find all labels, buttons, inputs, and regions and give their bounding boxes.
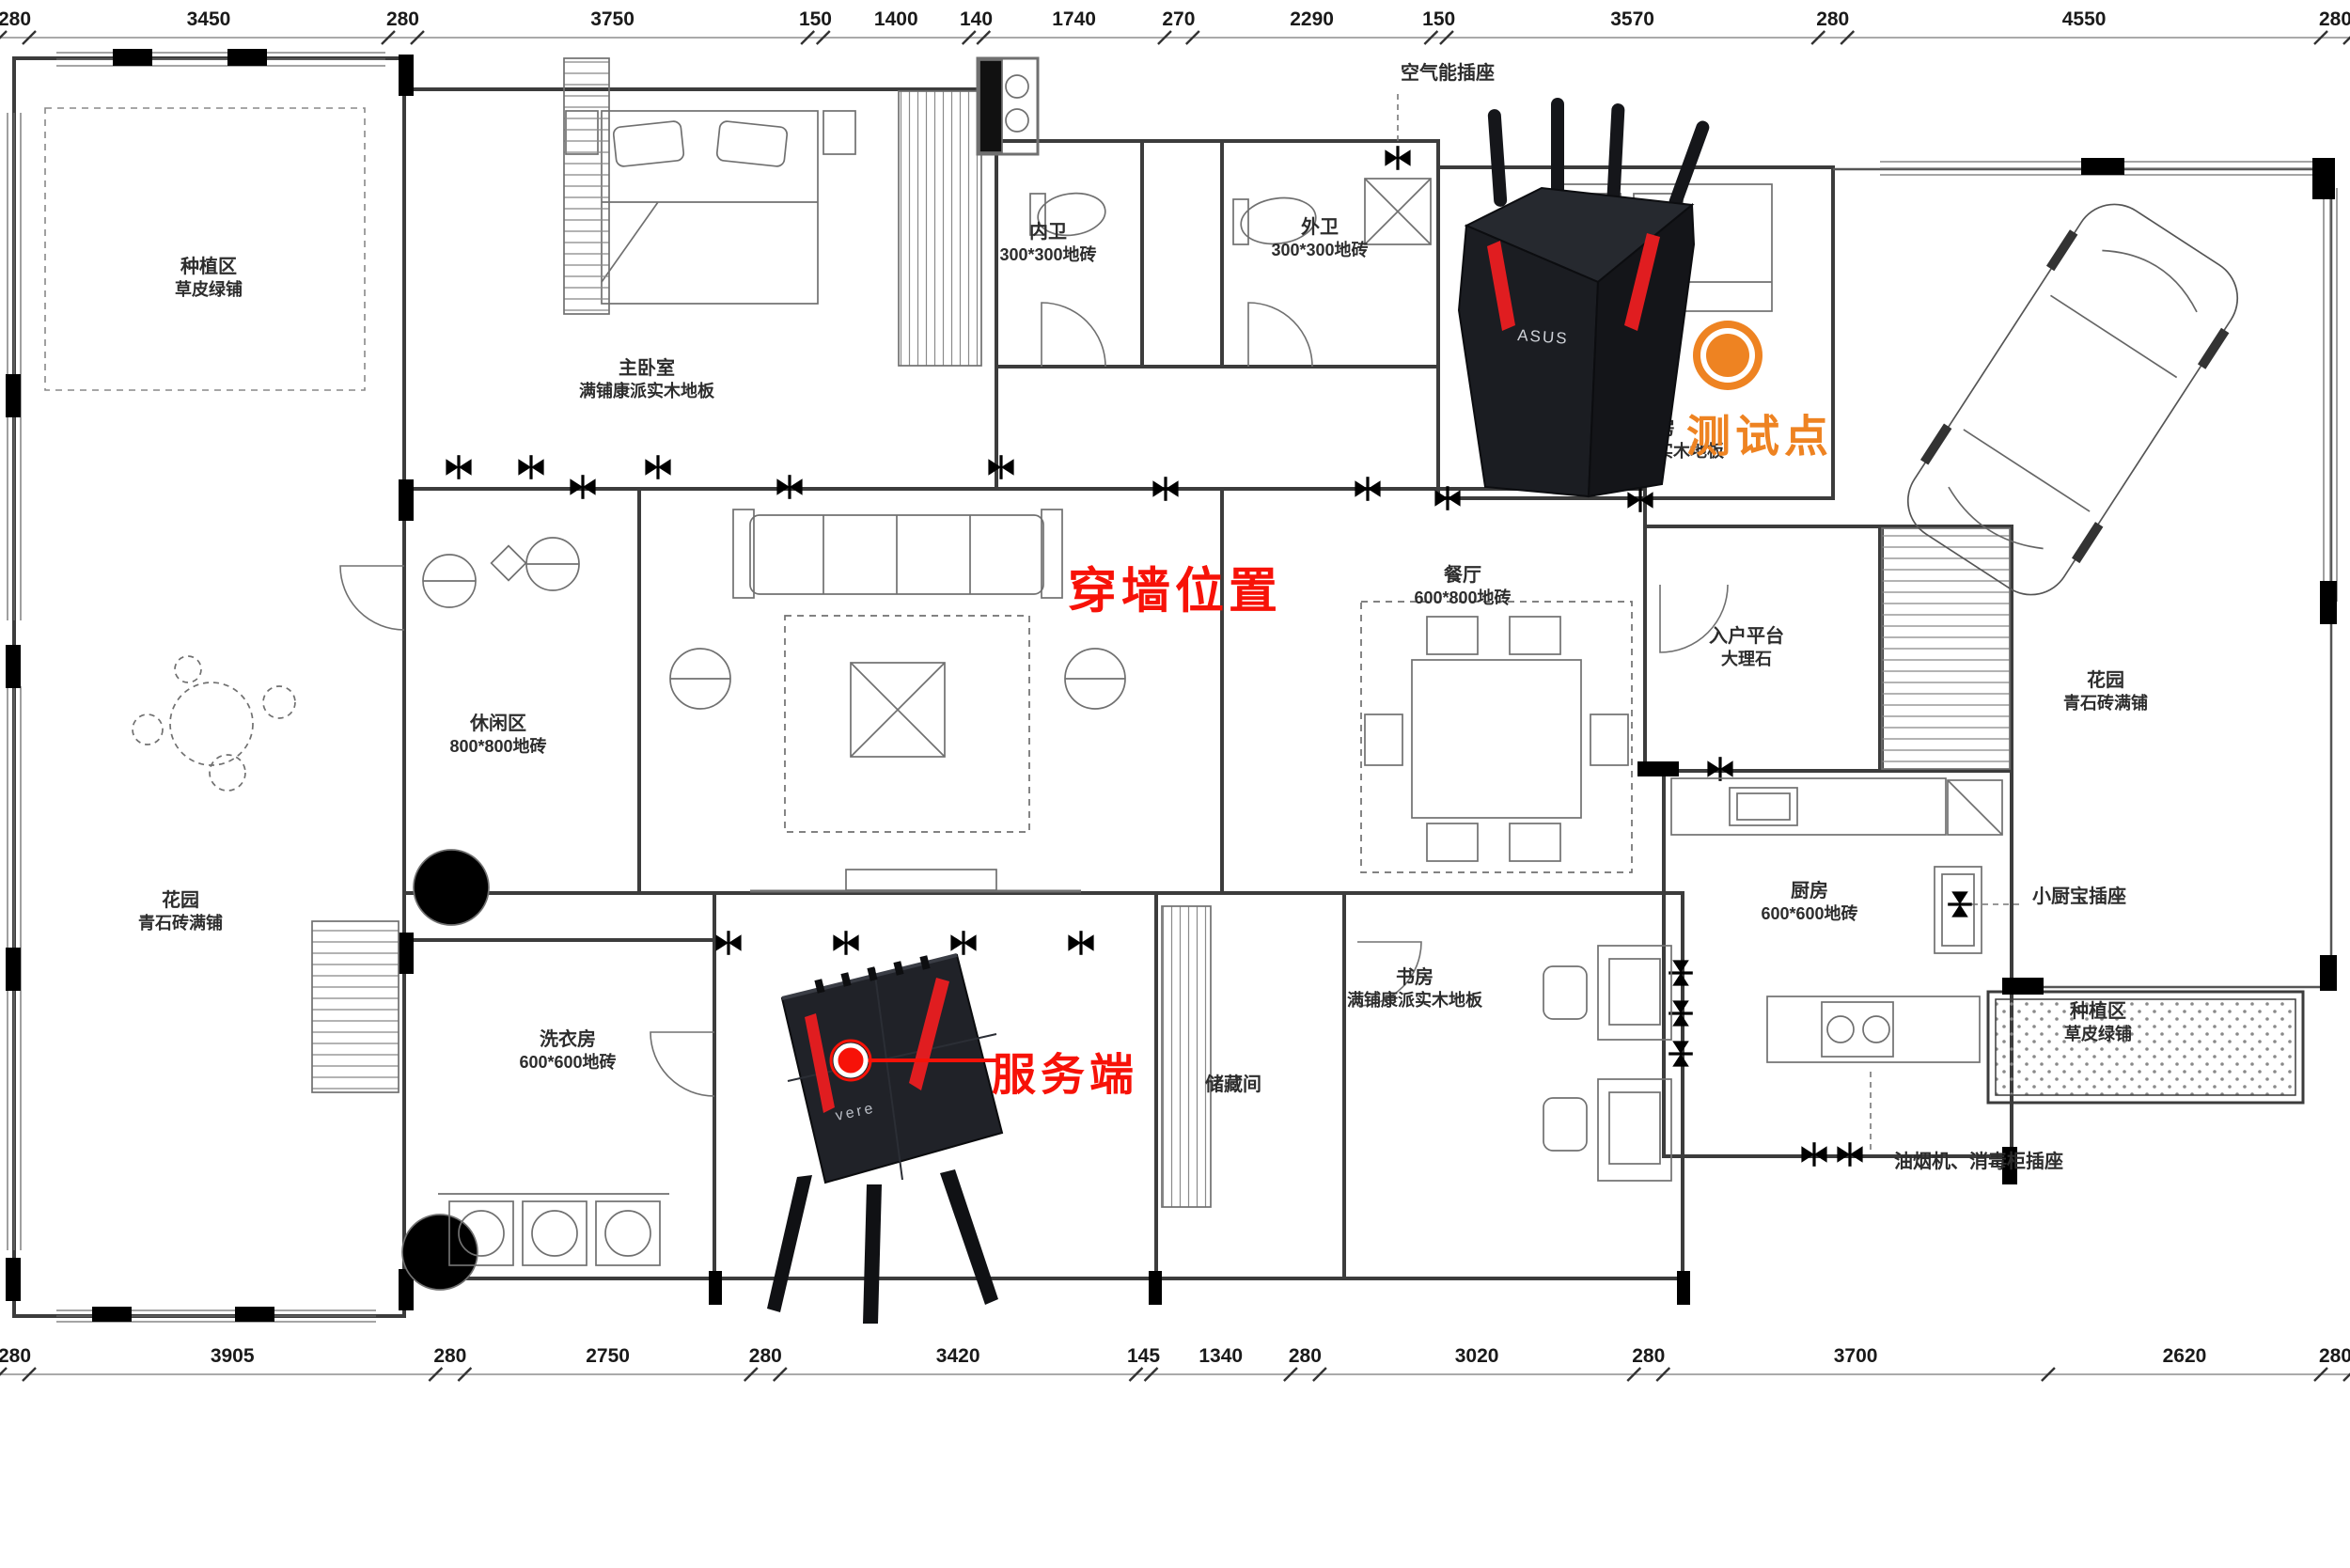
svg-text:3570: 3570 [1610, 8, 1654, 30]
svg-text:150: 150 [799, 8, 832, 30]
svg-text:1400: 1400 [874, 8, 918, 30]
svg-text:3020: 3020 [1455, 1345, 1499, 1367]
floorplan-canvas: 种植区草皮绿铺主卧室满铺康派实木地板内卫300*300地砖外卫300*300地砖… [0, 0, 2350, 1568]
svg-text:280: 280 [749, 1345, 782, 1367]
room-label-garden-right: 花园青石砖满铺 [2063, 669, 2148, 713]
svg-text:3420: 3420 [936, 1345, 980, 1367]
svg-text:3700: 3700 [1834, 1345, 1878, 1367]
room-label-master-bedroom: 主卧室满铺康派实木地板 [579, 356, 715, 400]
room-label-socket-kitchen: 小厨宝插座 [2032, 885, 2126, 907]
room-label-inner-bath: 内卫300*300地砖 [999, 220, 1096, 264]
svg-text:3750: 3750 [590, 8, 634, 30]
svg-text:280: 280 [433, 1345, 466, 1367]
room-label-socket-hood: 油烟机、消毒柜插座 [1894, 1150, 2063, 1172]
svg-text:270: 270 [1162, 8, 1195, 30]
svg-text:145: 145 [1127, 1345, 1160, 1367]
svg-text:2620: 2620 [2163, 1345, 2207, 1367]
svg-text:2290: 2290 [1290, 8, 1334, 30]
svg-text:280: 280 [1289, 1345, 1322, 1367]
room-label-planting-topleft: 种植区草皮绿铺 [175, 255, 243, 299]
router-brand-logo: ASUS [1517, 326, 1569, 348]
room-label-laundry: 洗衣房600*600地砖 [519, 1027, 616, 1072]
wall-cross-label: 穿墙位置 [1068, 552, 1282, 622]
svg-text:1340: 1340 [1198, 1345, 1243, 1367]
test-point-label: 测试点 [1686, 400, 1833, 465]
svg-text:140: 140 [960, 8, 993, 30]
dimension-chain-bottom: 2803905280275028034201451340280302028037… [0, 1345, 2350, 1381]
svg-text:280: 280 [2319, 1345, 2350, 1367]
server-label: 服务端 [992, 1039, 1138, 1104]
room-label-socket-air: 空气能插座 [1401, 61, 1495, 84]
svg-text:280: 280 [2319, 8, 2350, 30]
room-label-garden-left: 花园青石砖满铺 [138, 889, 223, 933]
room-label-lounge: 休闲区800*800地砖 [449, 712, 546, 756]
server-device: vere [767, 955, 1002, 1324]
svg-text:280: 280 [1632, 1345, 1665, 1367]
svg-text:280: 280 [0, 8, 31, 30]
svg-text:280: 280 [0, 1345, 31, 1367]
fixture-symbols [446, 94, 2023, 1167]
svg-text:1740: 1740 [1052, 8, 1096, 30]
svg-text:3450: 3450 [187, 8, 231, 30]
room-label-planting-right: 种植区草皮绿铺 [2064, 999, 2132, 1043]
room-label-study: 书房满铺康派实木地板 [1347, 965, 1483, 1010]
room-label-dining: 餐厅600*800地砖 [1414, 563, 1511, 607]
floorplan-drawing: 种植区草皮绿铺主卧室满铺康派实木地板内卫300*300地砖外卫300*300地砖… [0, 0, 2350, 1568]
room-label-kitchen: 厨房600*600地砖 [1761, 879, 1857, 923]
room-label-entry-platform: 入户平台大理石 [1709, 624, 1784, 668]
furniture [133, 58, 2257, 1290]
svg-text:4550: 4550 [2062, 8, 2107, 30]
dimension-chain-top: 2803450280375015014001401740270229015035… [0, 8, 2350, 44]
svg-text:280: 280 [386, 8, 419, 30]
svg-text:150: 150 [1422, 8, 1455, 30]
svg-text:2750: 2750 [586, 1345, 630, 1367]
room-label-storage: 储藏间 [1205, 1073, 1261, 1095]
room-label-outer-bath: 外卫300*300地砖 [1271, 215, 1368, 259]
svg-text:3905: 3905 [211, 1345, 255, 1367]
svg-text:280: 280 [1816, 8, 1849, 30]
test-point-marker [1693, 321, 1762, 390]
